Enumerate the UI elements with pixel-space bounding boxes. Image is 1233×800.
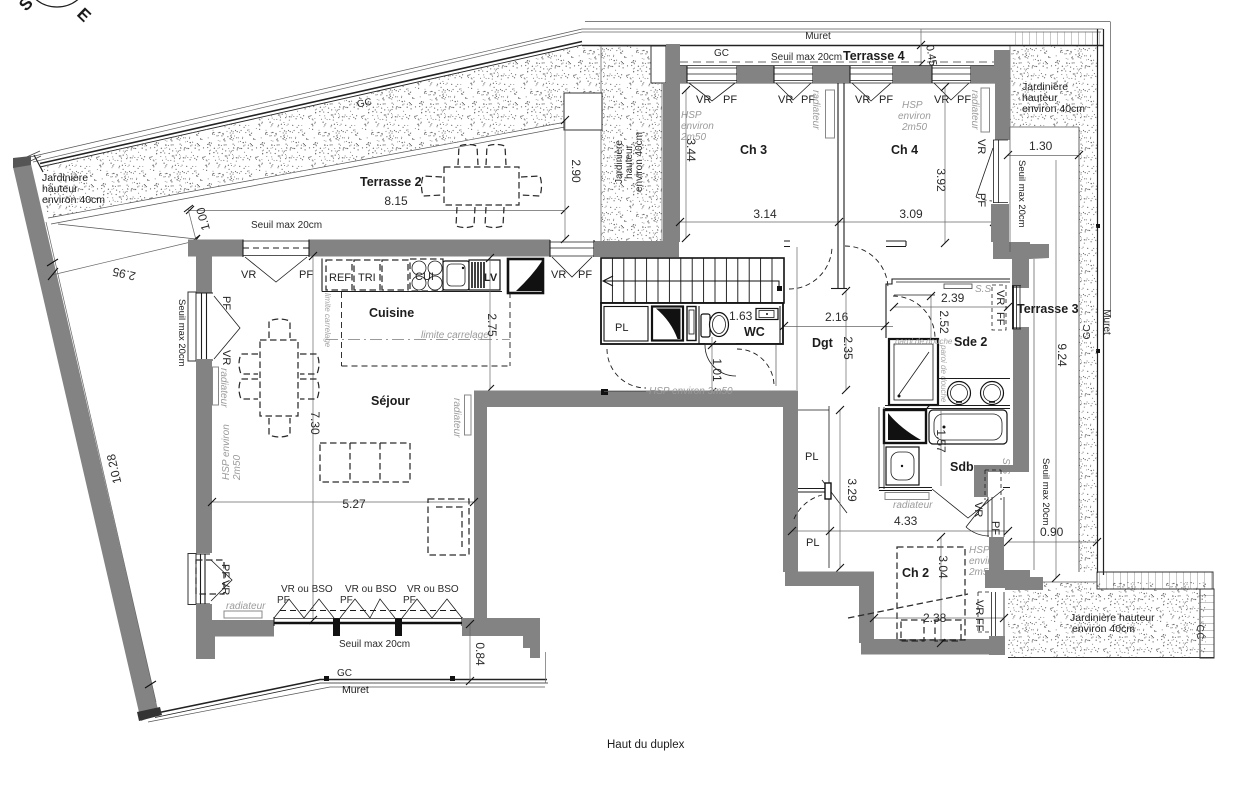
svg-text:Seuil max 20cm: Seuil max 20cm	[1016, 160, 1027, 228]
svg-text:PL: PL	[805, 451, 818, 463]
svg-text:radiateur: radiateur	[810, 90, 821, 130]
svg-text:environ 40cm: environ 40cm	[42, 194, 105, 206]
svg-text:4.33: 4.33	[894, 514, 918, 528]
svg-text:FF: FF	[973, 618, 985, 632]
svg-text:S.S: S.S	[975, 284, 991, 295]
svg-text:VR: VR	[220, 350, 232, 365]
svg-text:VR: VR	[855, 94, 870, 106]
svg-text:VR: VR	[696, 94, 711, 106]
svg-text:PF: PF	[219, 564, 231, 578]
svg-text:2.75: 2.75	[485, 313, 499, 337]
svg-text:VR: VR	[972, 502, 984, 517]
svg-text:paroi de douche: paroi de douche	[939, 344, 948, 403]
svg-text:Seuil max 20cm: Seuil max 20cm	[1040, 458, 1051, 526]
svg-text:GC: GC	[1082, 325, 1093, 340]
svg-text:VR ou BSO: VR ou BSO	[345, 584, 397, 595]
svg-text:VR: VR	[551, 269, 566, 281]
svg-text:8.15: 8.15	[384, 194, 408, 208]
svg-text:limite carrelage: limite carrelage	[421, 330, 489, 341]
svg-text:Terrasse 4: Terrasse 4	[843, 49, 905, 63]
svg-text:PF: PF	[220, 296, 232, 310]
svg-text:Seuil max 20cm: Seuil max 20cm	[176, 299, 187, 367]
svg-text:Muret: Muret	[342, 684, 369, 696]
svg-text:PF: PF	[403, 595, 416, 606]
svg-text:3.09: 3.09	[899, 207, 923, 221]
svg-text:environ 40cm: environ 40cm	[634, 132, 645, 192]
svg-text:radiateur: radiateur	[893, 500, 933, 511]
svg-text:Séjour: Séjour	[371, 394, 410, 408]
svg-text:environ 40cm: environ 40cm	[1022, 103, 1085, 115]
svg-text:0.84: 0.84	[473, 642, 487, 666]
svg-text:radiateur: radiateur	[218, 368, 229, 408]
svg-text:PL: PL	[615, 322, 628, 334]
svg-text:2m50: 2m50	[232, 455, 243, 481]
svg-text:9.24: 9.24	[1055, 343, 1069, 367]
svg-text:VR: VR	[778, 94, 793, 106]
svg-text:3.14: 3.14	[753, 207, 777, 221]
svg-text:7.30: 7.30	[308, 411, 322, 435]
svg-text:GC: GC	[337, 668, 352, 679]
svg-text:HSP: HSP	[902, 100, 923, 111]
svg-text:Ch 4: Ch 4	[891, 143, 918, 157]
svg-text:HSP: HSP	[681, 110, 702, 121]
svg-text:Seuil max 20cm: Seuil max 20cm	[771, 52, 842, 63]
svg-text:Dgt: Dgt	[812, 336, 834, 350]
svg-text:Muret: Muret	[805, 31, 831, 42]
svg-text:Sdb: Sdb	[950, 460, 974, 474]
svg-text:FF: FF	[994, 312, 1006, 326]
svg-text:PF: PF	[879, 94, 893, 106]
svg-text:PL: PL	[806, 537, 819, 549]
svg-text:PF: PF	[723, 94, 737, 106]
svg-text:VR: VR	[241, 269, 256, 281]
svg-text:VR ou BSO: VR ou BSO	[407, 584, 459, 595]
svg-text:2.35: 2.35	[841, 336, 855, 360]
svg-text:Cuisine: Cuisine	[369, 306, 414, 320]
svg-text:Terrasse 2: Terrasse 2	[360, 175, 422, 189]
svg-text:HSP environ 3m50: HSP environ 3m50	[649, 386, 733, 397]
svg-text:Muret: Muret	[1101, 309, 1112, 335]
svg-text:PF: PF	[299, 269, 313, 281]
svg-text:2m50: 2m50	[901, 122, 927, 133]
svg-text:HSP environ: HSP environ	[221, 424, 232, 480]
svg-text:1.01: 1.01	[710, 358, 724, 382]
svg-text:PF: PF	[578, 269, 592, 281]
svg-text:REF: REF	[329, 272, 351, 284]
svg-text:environ: environ	[898, 111, 931, 122]
svg-text:PF: PF	[340, 595, 353, 606]
svg-text:VR ou BSO: VR ou BSO	[281, 584, 333, 595]
svg-text:WC: WC	[744, 325, 765, 339]
svg-text:radiateur: radiateur	[226, 601, 266, 612]
svg-text:1.63: 1.63	[729, 309, 753, 323]
svg-text:VR: VR	[219, 580, 231, 595]
svg-text:radiateur: radiateur	[969, 90, 980, 130]
svg-text:TRI: TRI	[358, 272, 376, 284]
svg-text:1.30: 1.30	[1029, 139, 1053, 153]
svg-text:CUI: CUI	[415, 271, 434, 283]
svg-text:Haut du duplex: Haut du duplex	[607, 739, 685, 751]
svg-text:VR: VR	[994, 290, 1006, 305]
svg-text:3.44: 3.44	[684, 138, 698, 162]
svg-text:GC: GC	[714, 48, 729, 59]
svg-text:2.16: 2.16	[825, 310, 849, 324]
svg-text:2.39: 2.39	[941, 291, 965, 305]
svg-text:3.04: 3.04	[936, 555, 950, 579]
svg-text:environ 40cm: environ 40cm	[1072, 623, 1135, 635]
svg-text:5.27: 5.27	[342, 497, 366, 511]
svg-text:VR: VR	[934, 94, 949, 106]
svg-text:Ch 3: Ch 3	[740, 143, 767, 157]
svg-text:2.52: 2.52	[937, 310, 951, 334]
svg-text:Seuil max 20cm: Seuil max 20cm	[251, 220, 322, 231]
svg-text:1.57: 1.57	[934, 429, 948, 453]
svg-text:Terrasse 3: Terrasse 3	[1017, 302, 1079, 316]
svg-text:VR: VR	[973, 600, 985, 615]
svg-text:3.29: 3.29	[845, 478, 859, 502]
svg-text:2.38: 2.38	[923, 611, 947, 625]
svg-text:HSP: HSP	[969, 545, 990, 556]
svg-text:VR: VR	[975, 139, 987, 154]
svg-text:Seuil max 20cm: Seuil max 20cm	[339, 639, 410, 650]
svg-text:0.90: 0.90	[1040, 525, 1064, 539]
svg-text:LV: LV	[484, 272, 498, 284]
svg-text:2.90: 2.90	[569, 159, 583, 183]
svg-text:PF: PF	[989, 521, 1001, 535]
svg-text:radiateur: radiateur	[451, 398, 462, 438]
svg-text:Ch 2: Ch 2	[902, 566, 929, 580]
svg-text:Sde 2: Sde 2	[954, 335, 987, 349]
svg-text:3.92: 3.92	[934, 168, 948, 192]
svg-text:PF: PF	[277, 595, 290, 606]
